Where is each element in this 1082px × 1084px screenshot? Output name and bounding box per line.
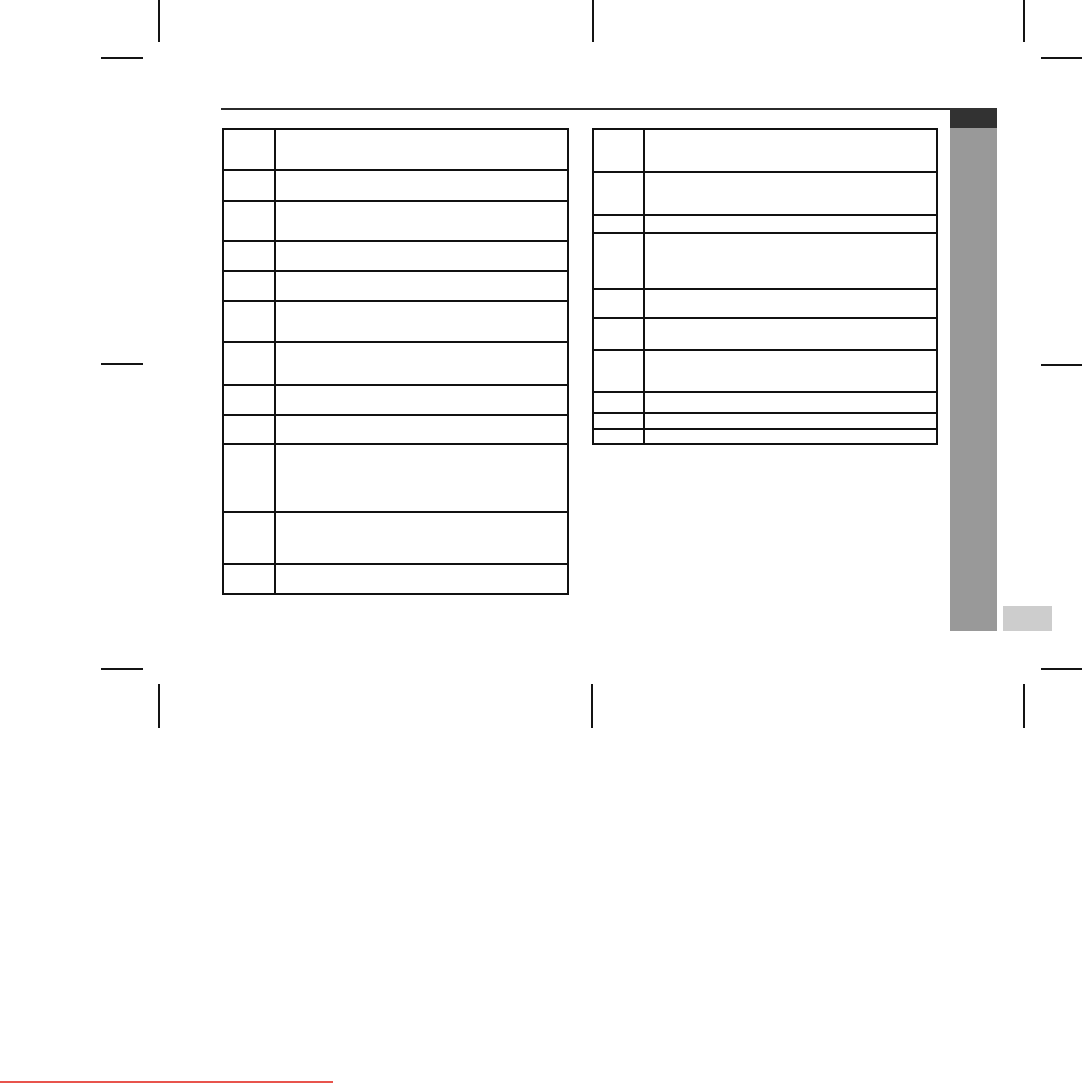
row-description-cell (276, 302, 567, 341)
table-row (224, 270, 567, 300)
row-key-cell (224, 242, 276, 270)
row-key-cell (224, 416, 276, 443)
row-key-cell (594, 290, 645, 317)
row-key-cell (224, 202, 276, 240)
row-key-cell (594, 234, 645, 288)
row-description-cell (645, 351, 936, 391)
row-key-cell (594, 351, 645, 391)
row-description-cell (276, 272, 567, 300)
crop-mark-middle-left-horizontal (101, 363, 143, 365)
row-description-cell (645, 216, 936, 232)
row-description-cell (645, 130, 936, 171)
row-key-cell (224, 171, 276, 200)
crop-mark-top-right-vertical (1023, 0, 1025, 42)
row-key-cell (594, 216, 645, 232)
row-description-cell (276, 171, 567, 200)
page-number-box (1003, 606, 1052, 631)
row-description-cell (645, 414, 936, 428)
row-description-cell (645, 234, 936, 288)
row-key-cell (594, 430, 645, 443)
table-row (594, 232, 936, 288)
scan-artifact-line (0, 1081, 333, 1083)
crop-mark-bottom-left-horizontal (101, 668, 143, 670)
row-description-cell (276, 565, 567, 593)
row-key-cell (594, 319, 645, 349)
row-description-cell (276, 130, 567, 169)
row-key-cell (224, 130, 276, 169)
table-row (594, 349, 936, 391)
row-key-cell (224, 513, 276, 563)
crop-mark-top-left-vertical (158, 0, 160, 42)
table-row (224, 200, 567, 240)
row-description-cell (276, 386, 567, 414)
row-key-cell (224, 343, 276, 384)
row-key-cell (224, 445, 276, 511)
row-description-cell (645, 173, 936, 214)
row-key-cell (594, 130, 645, 171)
row-description-cell (645, 430, 936, 443)
table-row (594, 428, 936, 443)
table-row (224, 169, 567, 200)
crop-mark-top-center-vertical (592, 0, 594, 42)
table-row (224, 563, 567, 593)
crop-mark-top-left-horizontal (101, 57, 143, 59)
crop-mark-bottom-center-vertical (591, 684, 593, 728)
row-key-cell (594, 173, 645, 214)
row-description-cell (276, 343, 567, 384)
row-description-cell (645, 290, 936, 317)
table-row (594, 130, 936, 171)
row-description-cell (276, 242, 567, 270)
section-tab-bar (950, 128, 997, 631)
table-row (594, 317, 936, 349)
row-description-cell (645, 393, 936, 412)
table-row (594, 391, 936, 412)
table-row (594, 412, 936, 428)
crop-mark-bottom-left-vertical (158, 684, 160, 728)
row-key-cell (594, 414, 645, 428)
crop-mark-bottom-right-vertical (1023, 684, 1025, 728)
row-key-cell (594, 393, 645, 412)
row-key-cell (224, 386, 276, 414)
table-row (224, 300, 567, 341)
table-row (594, 171, 936, 214)
table-row (594, 214, 936, 232)
header-rule (221, 108, 950, 110)
row-description-cell (645, 319, 936, 349)
row-key-cell (224, 302, 276, 341)
table-row (224, 414, 567, 443)
row-description-cell (276, 202, 567, 240)
table-row (224, 511, 567, 563)
document-page (0, 0, 1082, 1084)
row-description-cell (276, 416, 567, 443)
parts-table-left (222, 128, 569, 595)
row-key-cell (224, 565, 276, 593)
table-row (224, 240, 567, 270)
table-row (224, 384, 567, 414)
row-description-cell (276, 445, 567, 511)
row-key-cell (224, 272, 276, 300)
crop-mark-top-right-horizontal (1041, 57, 1082, 59)
section-tab-header-block (950, 108, 997, 128)
table-row (224, 130, 567, 169)
crop-mark-middle-right-horizontal (1041, 364, 1082, 366)
table-row (594, 288, 936, 317)
parts-table-right (592, 128, 938, 445)
row-description-cell (276, 513, 567, 563)
table-row (224, 341, 567, 384)
crop-mark-bottom-right-horizontal (1041, 668, 1082, 670)
table-row (224, 443, 567, 511)
